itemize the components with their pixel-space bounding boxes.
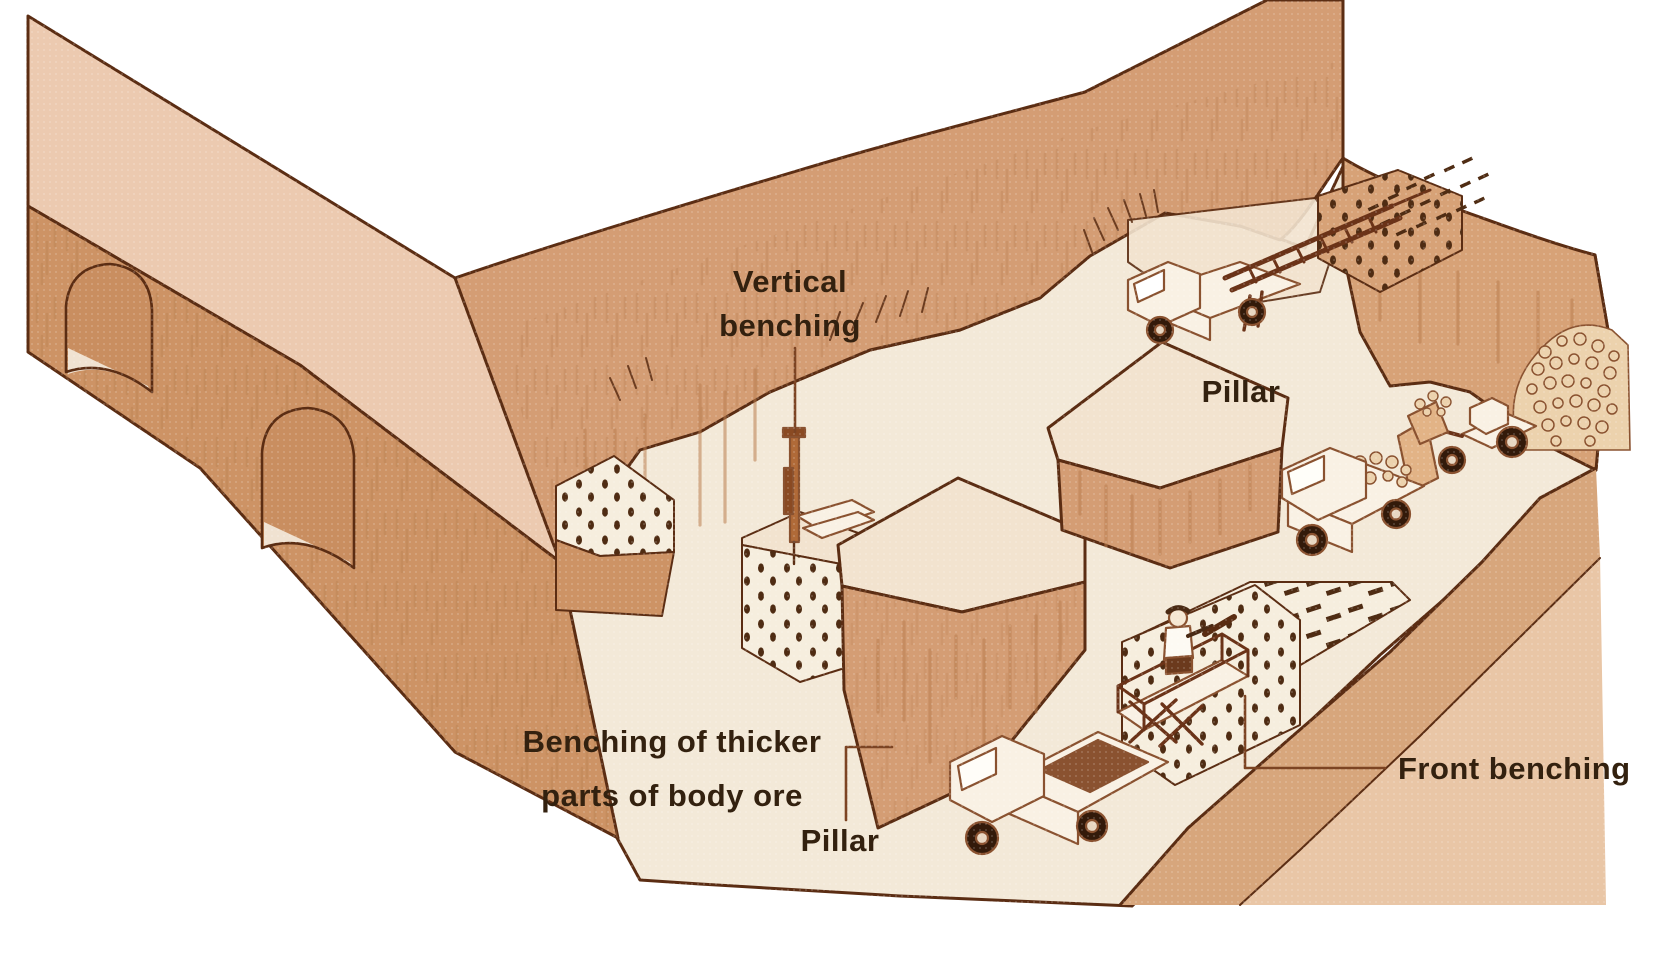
label-front-benching: Front benching (1398, 751, 1631, 786)
label-benching-line1: Benching of thicker (523, 724, 822, 759)
label-pillar-bottom: Pillar (801, 823, 880, 858)
label-pillar-top: Pillar (1202, 374, 1281, 409)
label-vertical-benching-line2: benching (719, 308, 861, 343)
mining-method-figure: Vertical benching Pillar Benching of thi… (0, 0, 1662, 953)
label-vertical-benching-line1: Vertical (733, 264, 847, 299)
arch-opening (262, 408, 354, 568)
label-benching-line2: parts of body ore (541, 778, 803, 813)
mining-method-illustration: Vertical benching Pillar Benching of thi… (0, 0, 1662, 953)
